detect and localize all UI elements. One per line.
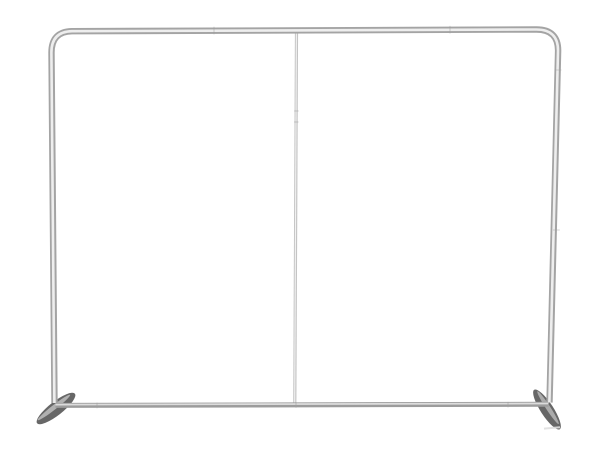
right-foot-tip-light bbox=[544, 427, 560, 428]
photo-background bbox=[0, 0, 600, 450]
frame-illustration bbox=[0, 0, 600, 450]
product-photo-backdrop-frame bbox=[0, 0, 600, 450]
bottom-crossbar-highlight bbox=[56, 404, 549, 405]
